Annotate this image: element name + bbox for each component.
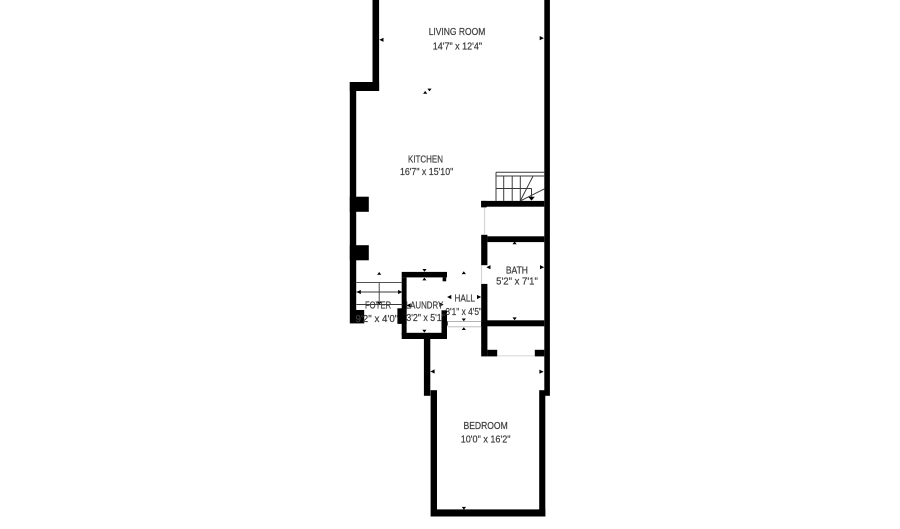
svg-text:HALL: HALL <box>455 293 476 305</box>
svg-text:KITCHEN: KITCHEN <box>408 153 443 165</box>
svg-text:LAUNDRY: LAUNDRY <box>406 300 444 312</box>
svg-text:LIVING ROOM: LIVING ROOM <box>429 26 486 38</box>
svg-text:3'2" x 5'1": 3'2" x 5'1" <box>406 312 445 324</box>
svg-text:5'2" x 7'1": 5'2" x 7'1" <box>496 276 538 288</box>
svg-text:BATH: BATH <box>506 264 528 276</box>
svg-text:BEDROOM: BEDROOM <box>464 420 508 432</box>
svg-text:9'2" x 4'0": 9'2" x 4'0" <box>356 313 399 325</box>
svg-text:10'0" x 16'2": 10'0" x 16'2" <box>461 433 511 445</box>
svg-text:3'1" x 4'5": 3'1" x 4'5" <box>445 306 482 318</box>
svg-text:16'7" x 15'10": 16'7" x 15'10" <box>400 166 454 178</box>
svg-text:FOYER: FOYER <box>365 299 391 311</box>
svg-text:14'7" x 12'4": 14'7" x 12'4" <box>433 41 483 53</box>
